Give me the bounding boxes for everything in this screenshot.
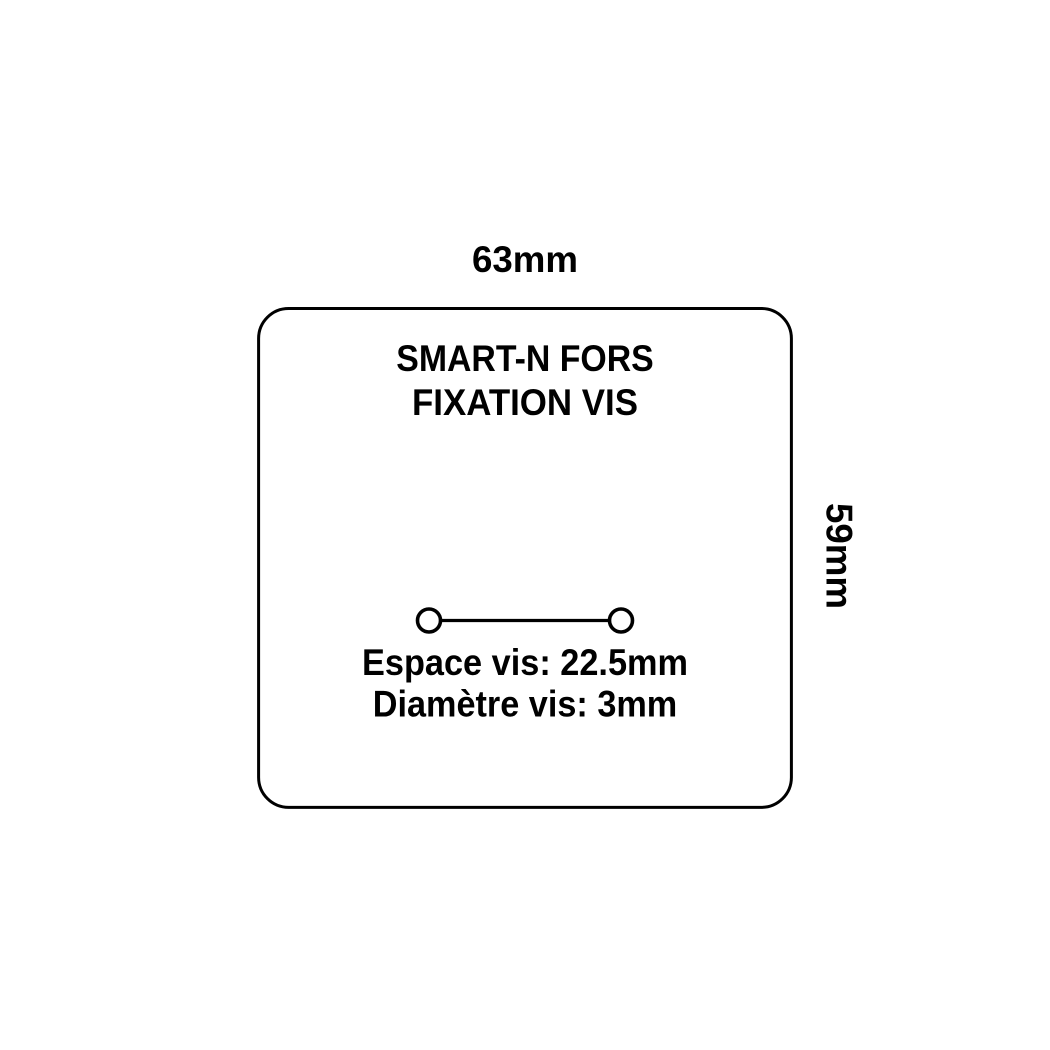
svg-text:Espace vis: 22.5mm: Espace vis: 22.5mm — [362, 642, 688, 683]
svg-text:63mm: 63mm — [472, 239, 578, 280]
svg-text:SMART-N FORS: SMART-N FORS — [396, 338, 654, 379]
svg-text:59mm: 59mm — [818, 503, 859, 609]
svg-text:Diamètre vis: 3mm: Diamètre vis: 3mm — [373, 684, 678, 725]
svg-text:FIXATION VIS: FIXATION VIS — [412, 382, 638, 423]
